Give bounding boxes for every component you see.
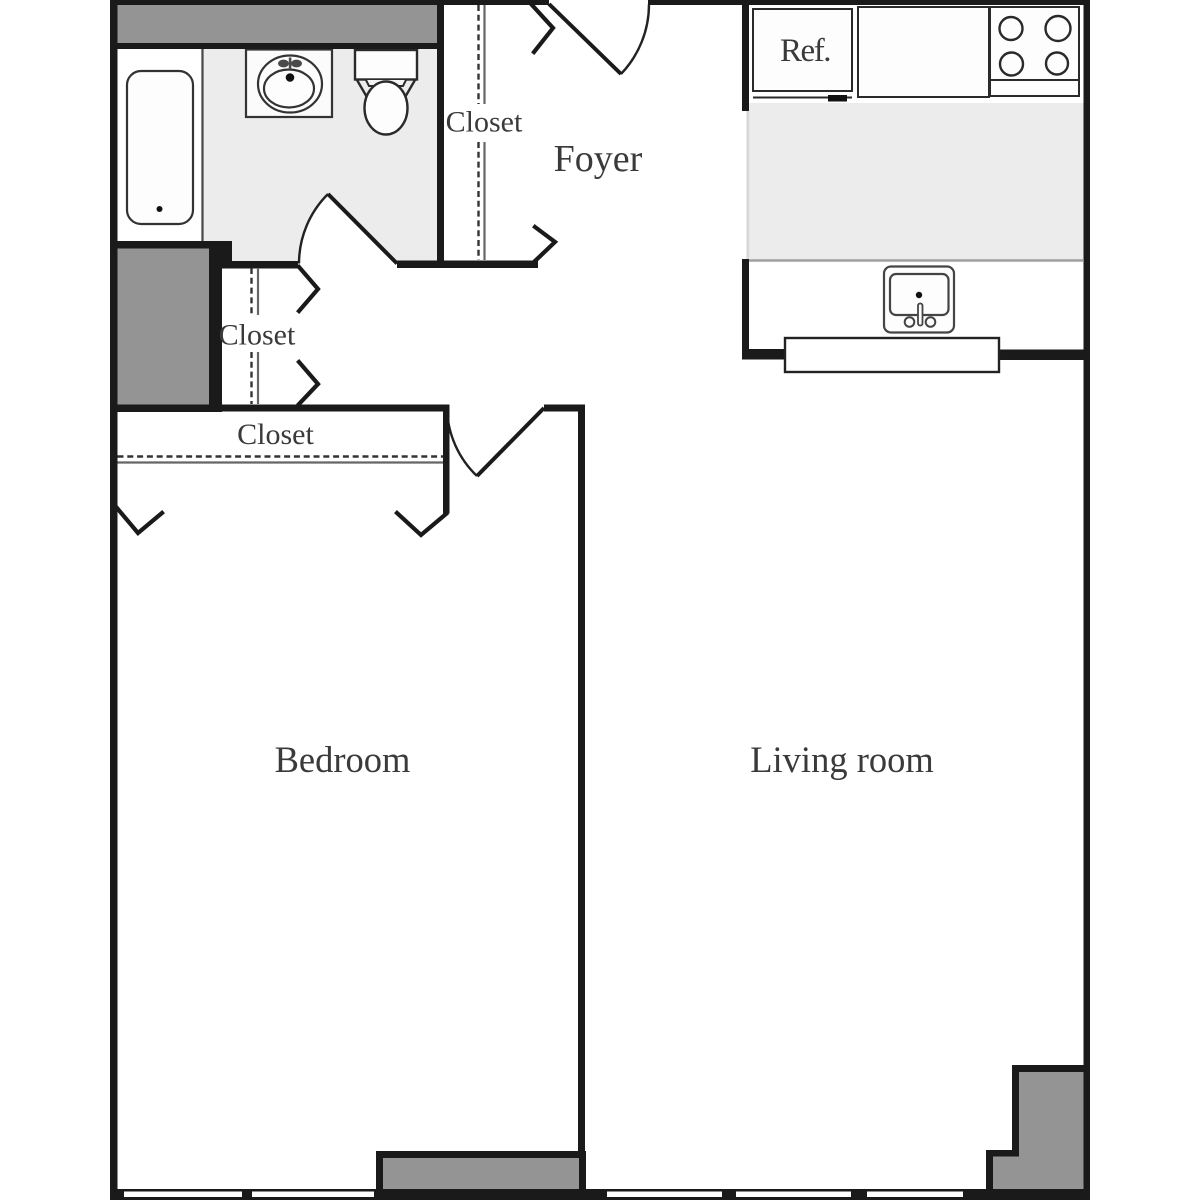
svg-text:Closet: Closet xyxy=(219,319,296,352)
svg-text:Closet: Closet xyxy=(237,418,314,451)
svg-text:Foyer: Foyer xyxy=(554,138,643,180)
svg-text:Closet: Closet xyxy=(446,106,523,139)
svg-text:Living room: Living room xyxy=(750,739,934,780)
svg-text:Bedroom: Bedroom xyxy=(275,739,411,780)
svg-text:Ref.: Ref. xyxy=(780,33,830,69)
